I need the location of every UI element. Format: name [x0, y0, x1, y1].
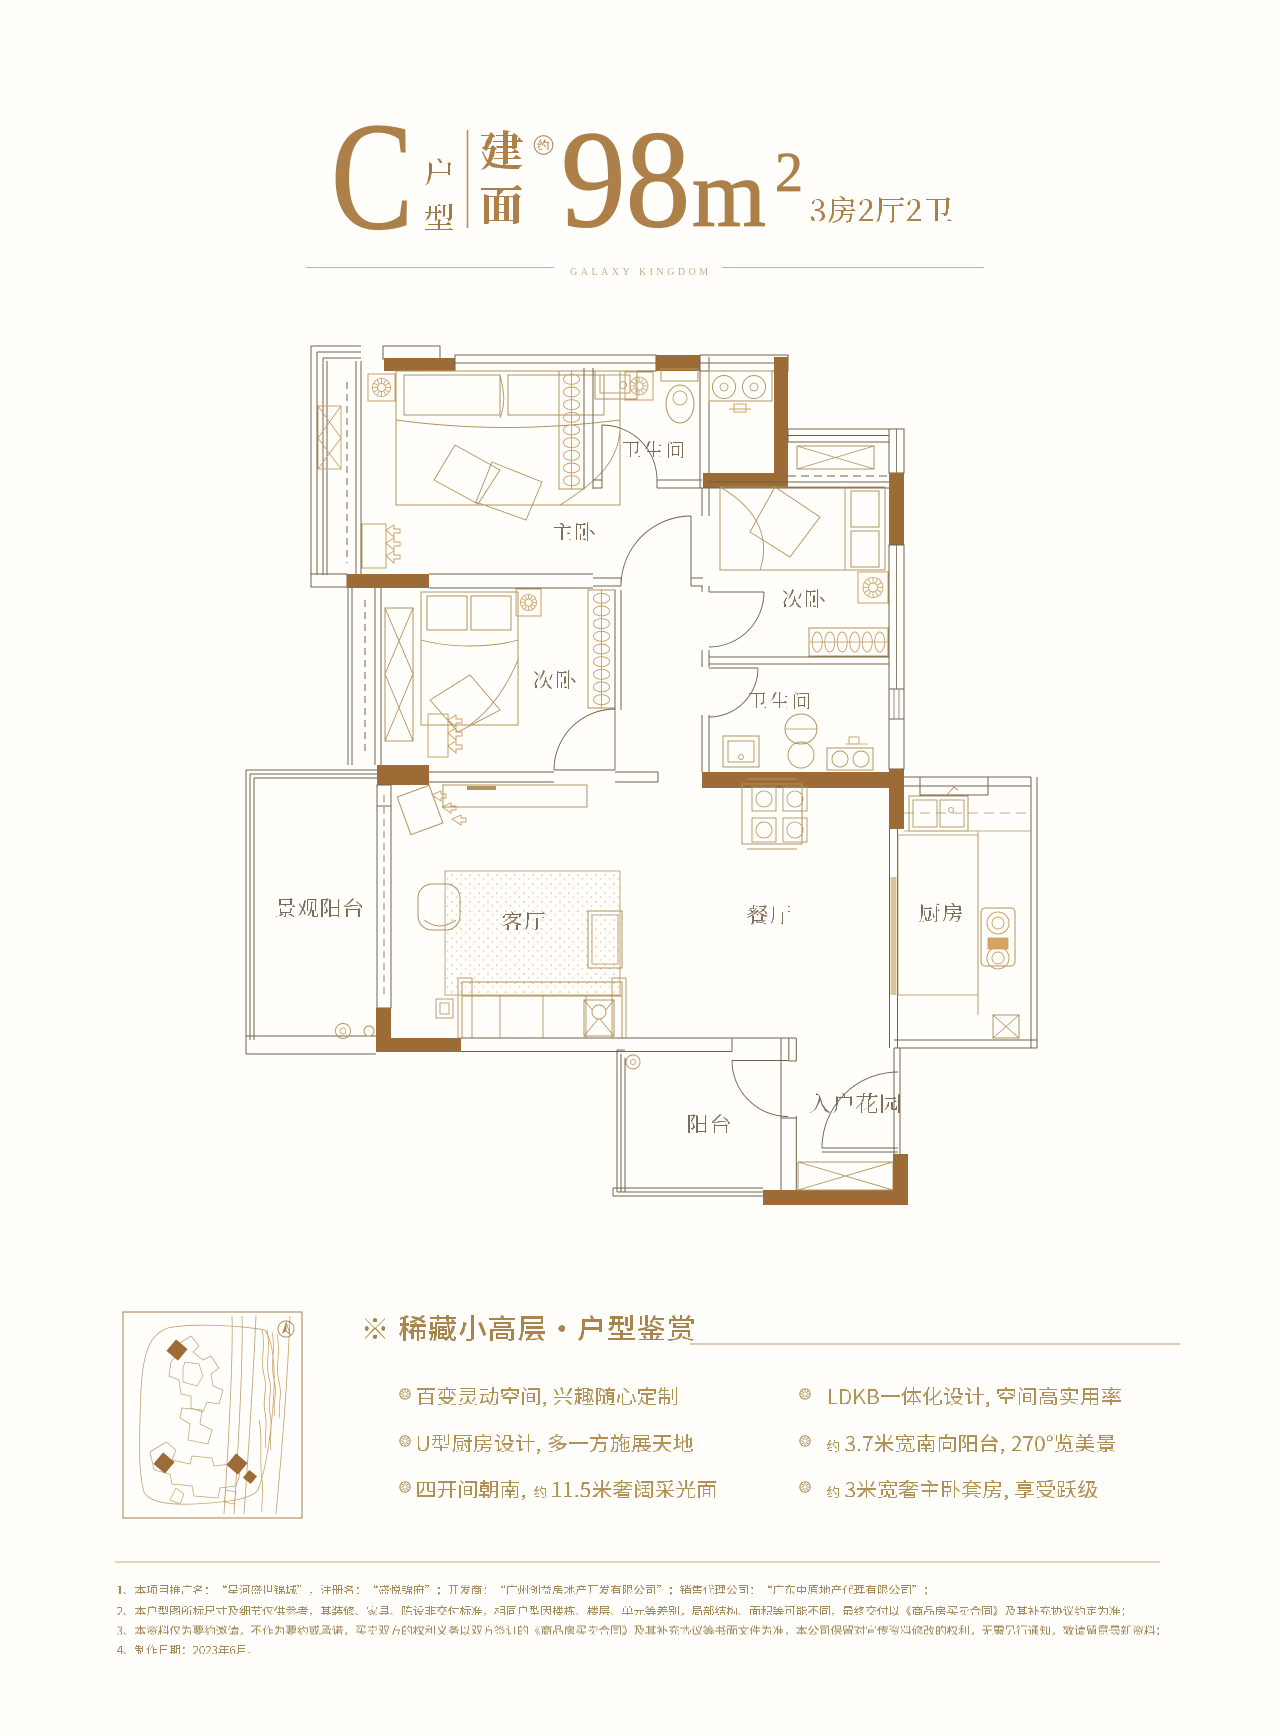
svg-text:C: C: [331, 92, 413, 262]
svg-text:98: 98: [561, 103, 690, 257]
svg-text:GALAXY KINGDOM: GALAXY KINGDOM: [570, 267, 712, 278]
svg-text:m: m: [692, 141, 766, 247]
svg-text:2: 2: [775, 142, 803, 204]
